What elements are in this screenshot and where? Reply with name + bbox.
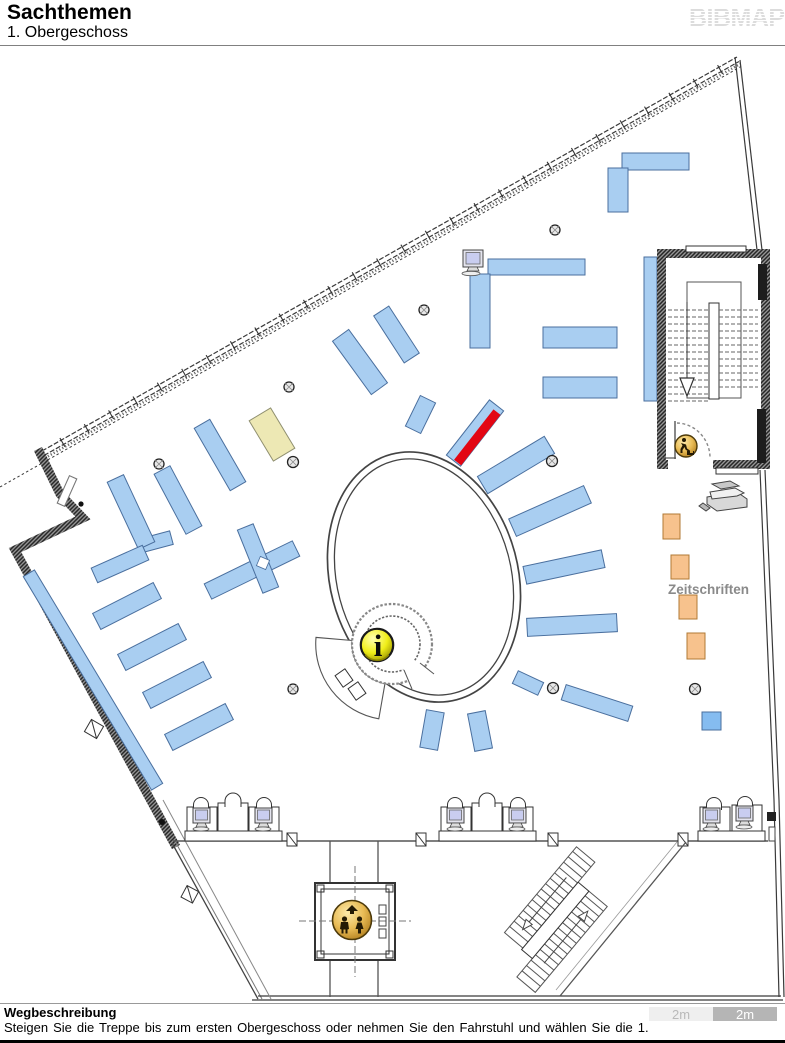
svg-text:2m: 2m <box>736 1007 754 1022</box>
svg-text:Zeitschriften: Zeitschriften <box>668 582 749 597</box>
svg-text:2m: 2m <box>672 1007 690 1022</box>
svg-text:BIBMAP: BIBMAP <box>689 4 785 32</box>
svg-text:i: i <box>374 628 383 663</box>
